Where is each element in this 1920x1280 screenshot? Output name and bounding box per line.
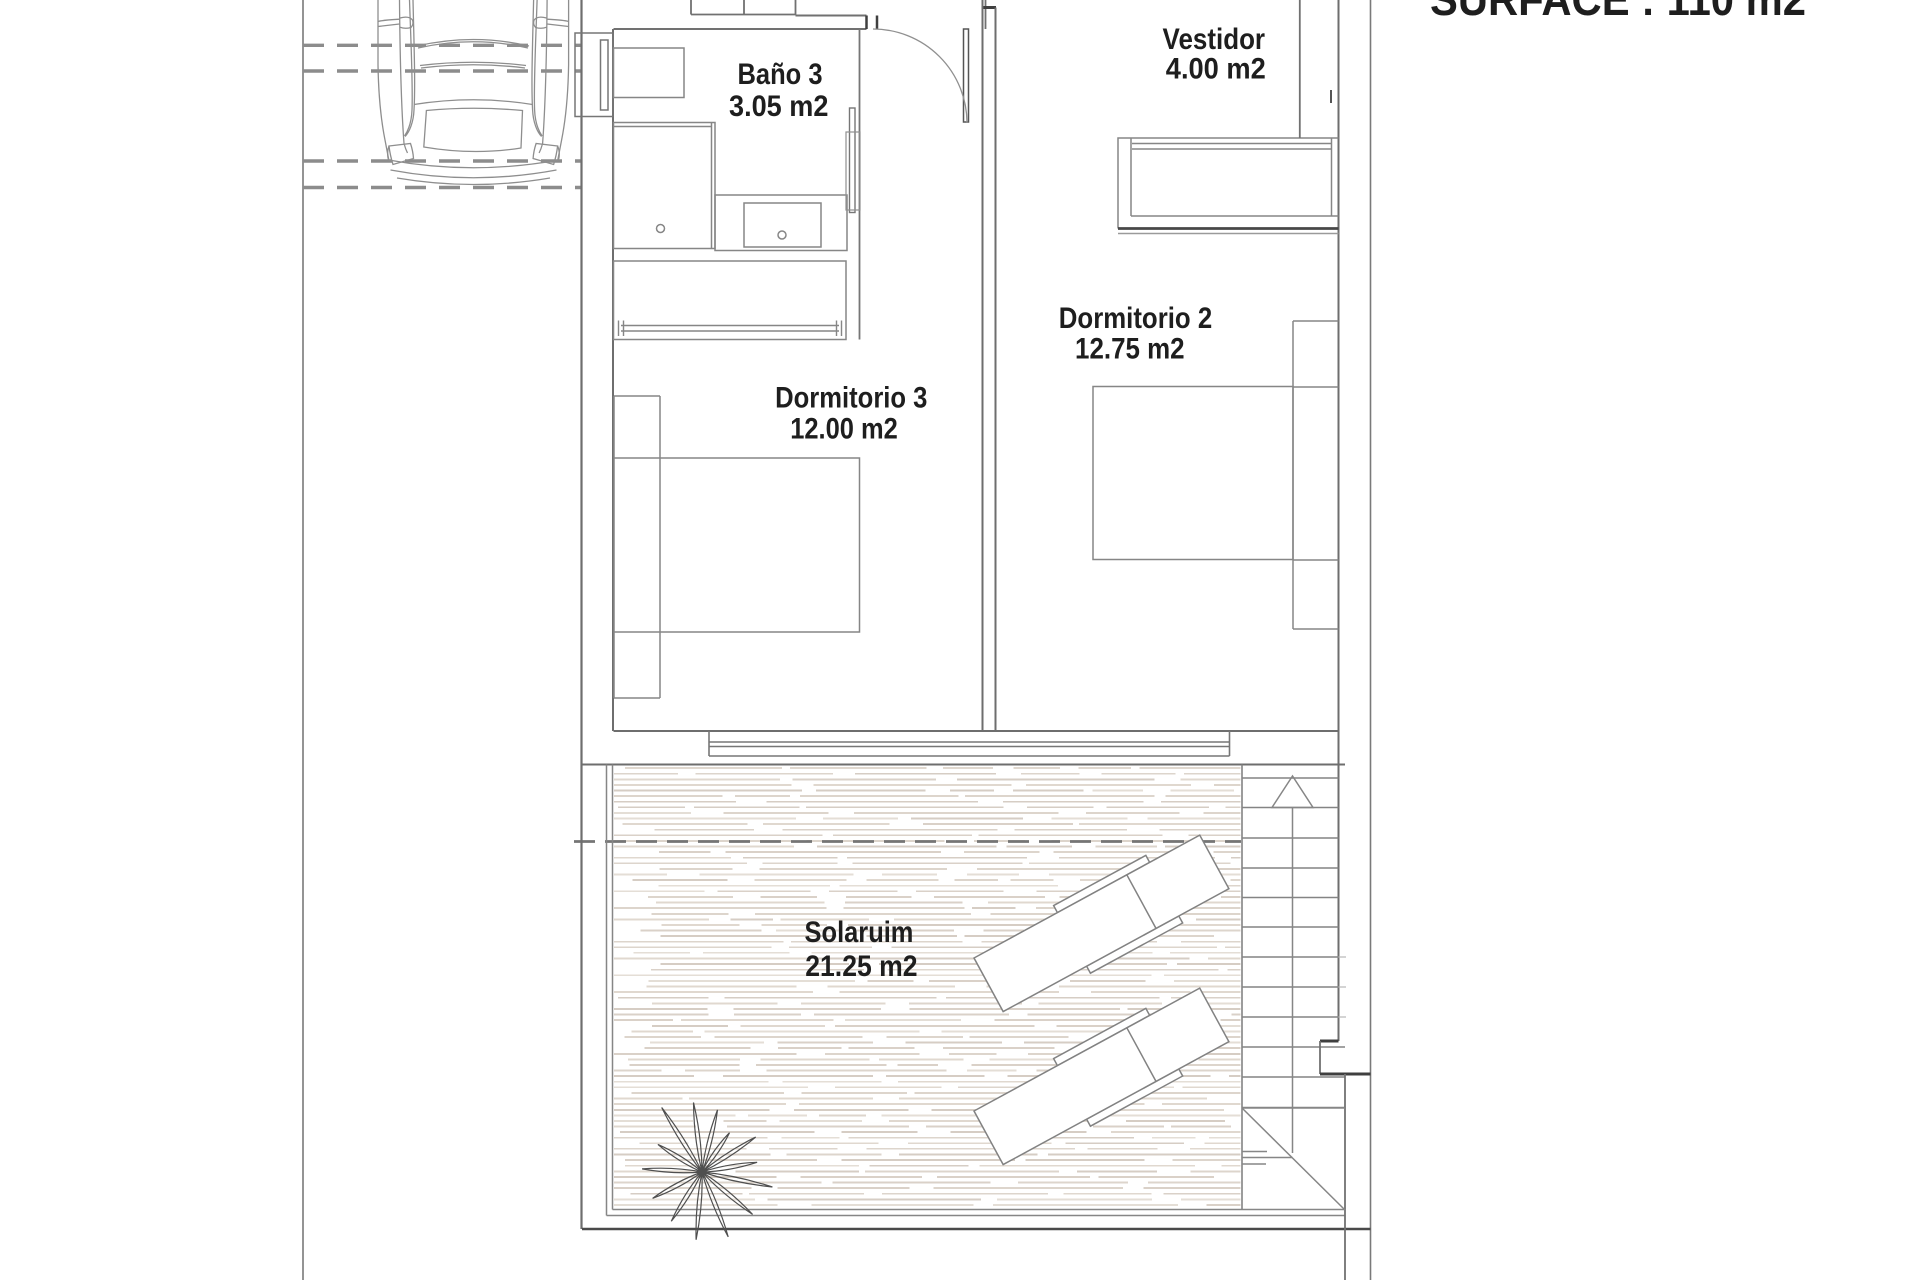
svg-text:Baño 3: Baño 3: [738, 58, 823, 91]
svg-text:12.00 m2: 12.00 m2: [790, 413, 898, 446]
svg-text:Dormitorio 2: Dormitorio 2: [1059, 302, 1212, 335]
svg-text:Dormitorio 3: Dormitorio 3: [775, 381, 927, 414]
svg-text:Solaruim: Solaruim: [805, 916, 914, 949]
svg-text:Vestidor: Vestidor: [1163, 23, 1266, 56]
svg-text:SURFACE : 110 m2: SURFACE : 110 m2: [1430, 0, 1806, 25]
svg-text:21.25 m2: 21.25 m2: [805, 950, 917, 983]
svg-text:3.05 m2: 3.05 m2: [729, 90, 828, 123]
svg-text:4.00 m2: 4.00 m2: [1166, 52, 1266, 85]
svg-text:12.75 m2: 12.75 m2: [1075, 333, 1185, 366]
